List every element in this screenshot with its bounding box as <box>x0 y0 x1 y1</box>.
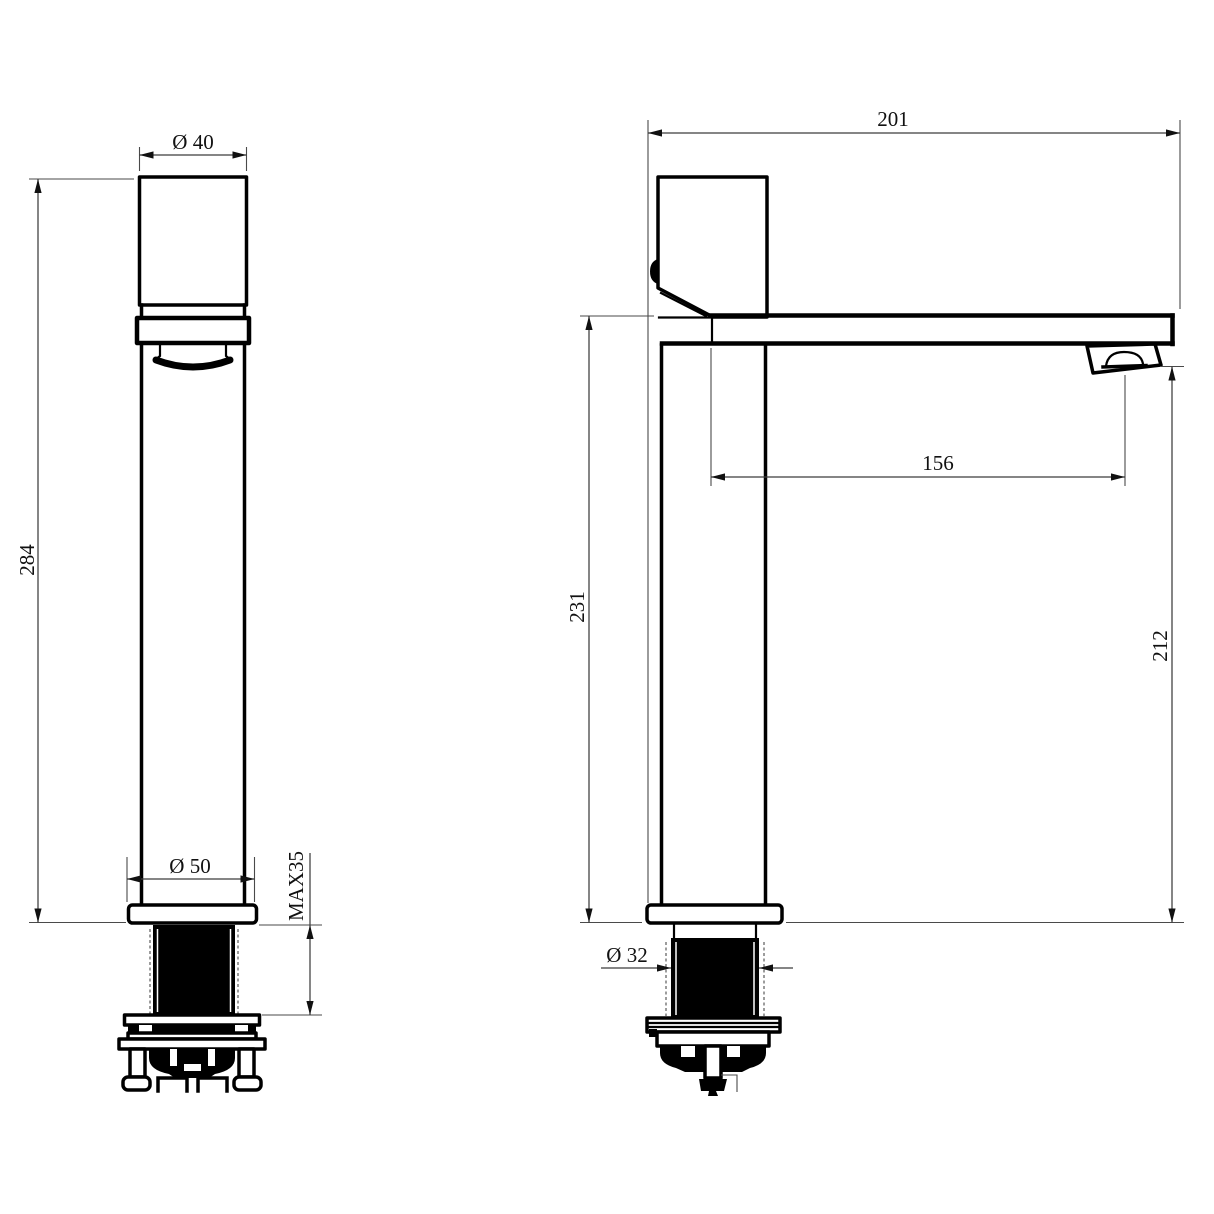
front-washer-plate-upper <box>125 1015 260 1025</box>
front-spout-collar <box>137 318 249 343</box>
front-hose-tail-left <box>158 1078 187 1091</box>
side-shank-neck <box>674 923 756 939</box>
side-set-screw <box>650 259 658 284</box>
side-drain-clip <box>699 1079 727 1096</box>
dim-label-overall-height: 284 <box>15 544 39 576</box>
front-handle-outline <box>140 177 247 305</box>
front-leg-right <box>239 1049 254 1077</box>
side-handle-outline <box>658 177 767 317</box>
front-view: Ø 40 284 Ø 50 MAX35 <box>15 130 322 1091</box>
side-nut-slot-right <box>727 1046 740 1057</box>
dim-label-max-deck: MAX35 <box>284 851 308 921</box>
side-lock-nut-bar <box>657 1032 769 1046</box>
technical-drawing: Ø 40 284 Ø 50 MAX35 <box>0 0 1214 1214</box>
dim-label-base-diameter: Ø 50 <box>169 854 210 878</box>
side-nut-slot-left <box>681 1046 695 1057</box>
dim-ext-spout-height <box>580 316 654 923</box>
dim-label-spout-height: 231 <box>565 591 589 623</box>
front-foot-left <box>123 1077 150 1090</box>
dim-label-shank-diameter: Ø 32 <box>606 943 647 967</box>
side-base-plate <box>647 905 782 923</box>
front-aerator-sides <box>155 343 231 360</box>
side-body-column <box>662 345 766 906</box>
front-base-plate <box>129 905 257 923</box>
front-mounting-hardware <box>119 1015 265 1091</box>
side-aerator-housing <box>1087 344 1161 373</box>
dim-label-top-diameter: Ø 40 <box>172 130 213 154</box>
front-hose-tail-right <box>198 1078 227 1091</box>
dim-ext-overall-height <box>29 179 134 923</box>
side-drain-rod <box>705 1046 721 1078</box>
front-leg-left <box>130 1049 145 1077</box>
dim-ext-spout-reach <box>711 348 1125 486</box>
dim-ext-max-deck <box>259 925 322 1015</box>
side-aerator-base <box>1103 366 1146 368</box>
side-threaded-shank <box>671 938 759 1018</box>
front-threaded-shank <box>153 925 235 1015</box>
dim-ext-outlet-height <box>786 367 1184 923</box>
side-mounting-hardware <box>647 1018 780 1096</box>
front-hose-slit-right <box>208 1049 215 1066</box>
front-foot-right <box>234 1077 261 1090</box>
front-hose-bundle <box>149 1049 235 1078</box>
dim-label-spout-reach: 156 <box>922 451 954 475</box>
front-aerator-ring <box>156 360 230 367</box>
dim-label-outlet-height: 212 <box>1148 630 1172 662</box>
side-washer-stack <box>647 1018 780 1032</box>
front-hose-slit-left <box>170 1049 177 1066</box>
dim-label-overall-depth: 201 <box>877 107 909 131</box>
side-view: 201 231 156 212 Ø 32 <box>565 107 1184 1096</box>
front-hose-gap-center <box>184 1064 201 1071</box>
front-body-column <box>142 343 245 906</box>
